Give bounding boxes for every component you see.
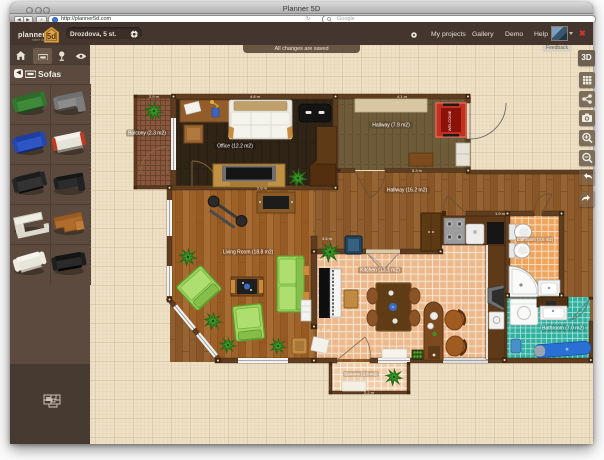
svg-text:Hallway (16.2 m2): Hallway (16.2 m2) — [387, 188, 428, 194]
svg-text:1.9 m: 1.9 m — [495, 211, 506, 216]
svg-text:3.6 m: 3.6 m — [322, 236, 333, 241]
svg-text:Balcony (2.3 m2): Balcony (2.3 m2) — [128, 131, 166, 137]
svg-text:2.8 m: 2.8 m — [257, 185, 268, 190]
svg-text:Bathroom (3.5 m2): Bathroom (3.5 m2) — [517, 237, 554, 242]
svg-text:Balcony (2.6 m2): Balcony (2.6 m2) — [344, 371, 378, 376]
svg-text:4.8 m: 4.8 m — [250, 94, 261, 99]
svg-text:0.45 m: 0.45 m — [318, 327, 331, 332]
svg-text:Kitchen (13.1 m2): Kitchen (13.1 m2) — [360, 268, 400, 274]
svg-text:Hallway (7.9 m2): Hallway (7.9 m2) — [372, 123, 410, 129]
svg-text:Office (12.2 m2): Office (12.2 m2) — [217, 144, 253, 150]
svg-text:2.2 m: 2.2 m — [364, 390, 375, 395]
svg-text:WELCOME: WELCOME — [447, 110, 452, 131]
svg-text:Bathroom (7.0 m2): Bathroom (7.0 m2) — [542, 326, 584, 332]
svg-text:2.9 m: 2.9 m — [149, 94, 160, 99]
svg-text:5.3 m: 5.3 m — [412, 168, 423, 173]
svg-text:4.1 m: 4.1 m — [397, 94, 408, 99]
svg-text:Living Room (18.8 m2): Living Room (18.8 m2) — [223, 250, 274, 256]
